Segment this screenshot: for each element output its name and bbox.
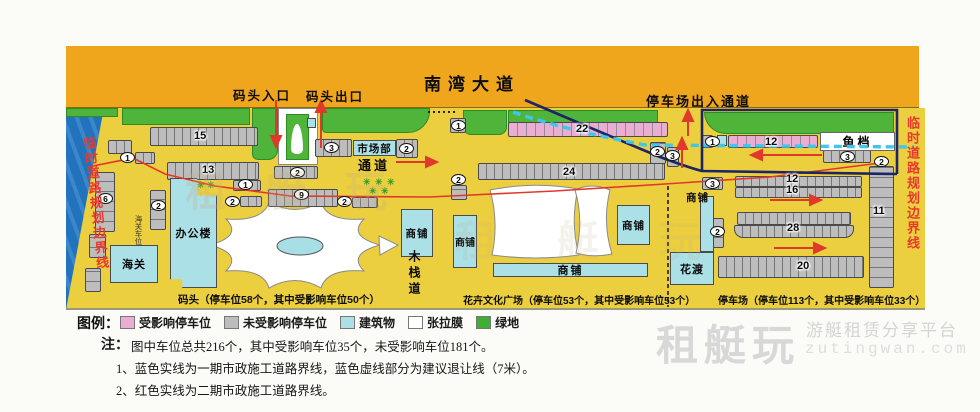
right-boundary-text: 临时道路规划边界线 — [903, 116, 922, 268]
row-number-24: 24 — [563, 166, 575, 178]
parking-stall — [135, 152, 155, 164]
gate-booth — [307, 118, 316, 128]
badge-3: 3 — [705, 178, 720, 189]
plant-icon: ✳ — [197, 180, 205, 191]
legend-title: 图例： — [77, 313, 119, 333]
legend-item-affected: 受影响停车位 — [120, 314, 211, 331]
building-shop: 商铺 — [453, 215, 477, 268]
watermark-brand: 租艇玩 — [656, 312, 800, 373]
boardwalk-label: 木栈道 — [406, 250, 423, 298]
badge-2: 2 — [151, 200, 166, 211]
row-number-16: 16 — [786, 184, 798, 196]
green-strip — [66, 108, 118, 117]
badge-9: 9 — [294, 189, 309, 200]
row-number-28: 28 — [787, 222, 799, 234]
membrane-swatch — [408, 316, 423, 329]
parking-lot-caption: 停车场（停车位113个，其中受影响车位33个） — [718, 292, 925, 307]
dock-caption: 码头（停车位58个，其中受影响车位50个） — [178, 292, 380, 307]
building-market-dept: 市场部 — [353, 140, 396, 156]
green-strip — [463, 110, 507, 135]
parking-row-2 — [352, 197, 378, 208]
row-number-15: 15 — [194, 130, 206, 142]
shop-label: 商铺 — [686, 190, 709, 205]
badge-3: 3 — [665, 150, 680, 161]
parking-col-2 — [451, 185, 467, 200]
badge-2: 2 — [650, 146, 665, 157]
shop-label: 商铺 — [558, 262, 584, 278]
unaffected-swatch — [224, 316, 239, 329]
watermark-tagline: 游艇租赁分享平台 — [806, 316, 958, 341]
legend: 受影响停车位 未受影响停车位 建筑物 张拉膜 绿地 — [120, 314, 519, 331]
note-line2: 2、红色实线为二期市政施工道路界线。 — [116, 380, 335, 399]
flower-ferry-label: 花渡 — [680, 261, 704, 277]
badge-1: 1 — [705, 136, 720, 147]
customs-label: 海关 — [122, 256, 146, 272]
parking-channel-label: 停车场出入通道 — [646, 91, 751, 110]
badge-2: 2 — [710, 226, 725, 237]
shop-label: 商铺 — [455, 234, 475, 249]
plaza-caption: 花卉文化广场（停车位53个，其中受影响车位53个） — [463, 292, 695, 307]
badge-2: 2 — [399, 143, 414, 154]
row-number-22: 22 — [576, 123, 588, 135]
green-strip — [704, 112, 894, 134]
note-prefix: 注： — [101, 334, 129, 354]
legend-label: 绿地 — [495, 314, 519, 331]
passage-label: 通道 — [358, 155, 390, 174]
legend-item-building: 建筑物 — [340, 314, 395, 331]
dock-exit-label: 码头出口 — [306, 86, 364, 105]
plant-icon: ✳ — [369, 186, 377, 197]
badge-1: 1 — [120, 152, 135, 163]
row-number-20: 20 — [797, 260, 809, 272]
affected-swatch — [120, 316, 135, 329]
legend-item-unaffected: 未受影响停车位 — [224, 314, 327, 331]
badge-3: 3 — [840, 151, 855, 162]
parking-row-20 — [718, 256, 864, 278]
plant-icon: ✳ — [381, 186, 389, 197]
building-swatch — [340, 316, 355, 329]
legend-item-green: 绿地 — [476, 314, 519, 331]
badge-2: 2 — [451, 174, 466, 185]
note-line1: 1、蓝色实线为一期市政施工道路界线，蓝色虚线部分为建议退让线（7米）。 — [116, 358, 535, 377]
legend-label: 受影响停车位 — [139, 314, 211, 331]
fish-stall-area: 鱼档 — [820, 132, 895, 151]
badge-2: 2 — [874, 156, 889, 167]
green-strip — [322, 108, 430, 133]
shop-label: 商铺 — [622, 218, 645, 233]
badge-1: 1 — [238, 179, 253, 190]
row-number-12: 12 — [765, 136, 777, 148]
badge-2: 2 — [337, 196, 352, 207]
parking-row-16 — [735, 187, 862, 198]
badge-1: 1 — [451, 120, 466, 131]
building-flower-ferry: 花渡 — [670, 252, 714, 285]
building-shop-bar: 商铺 — [493, 263, 648, 277]
office-label: 办公楼 — [176, 225, 212, 241]
legend-label: 未受影响停车位 — [243, 314, 327, 331]
customs-parking-label: 海关车位 — [133, 215, 144, 251]
badge-3: 3 — [324, 142, 339, 153]
row-number-13: 13 — [202, 164, 214, 176]
badge-2: 2 — [225, 196, 240, 207]
market-dept-label: 市场部 — [357, 141, 392, 156]
parking-row-12 — [735, 176, 862, 187]
site-map: 办公楼 海关 市场部 商铺 商铺 商铺 商铺 商铺 花渡 鱼档 15 13 22… — [0, 0, 980, 412]
watermark-domain: zutingwan.com — [805, 340, 969, 358]
plant-icon: ✳ — [207, 180, 215, 191]
shop-label: 商铺 — [406, 226, 429, 241]
legend-label: 建筑物 — [359, 314, 395, 331]
green-strip — [122, 108, 250, 125]
green-swatch — [476, 316, 491, 329]
parking-col-11 — [869, 166, 894, 288]
road-title: 南湾大道 — [424, 70, 520, 95]
note-summary: 图中车位总共216个，其中受影响车位35个，未受影响车位181个。 — [131, 336, 494, 355]
fish-stall-label: 鱼档 — [842, 133, 872, 150]
dock-entrance-label: 码头入口 — [233, 85, 291, 104]
legend-item-membrane: 张拉膜 — [408, 314, 463, 331]
parking-row-2 — [240, 196, 262, 207]
building-shop: 商铺 — [617, 205, 650, 245]
map-bottom-border — [66, 308, 925, 310]
legend-label: 张拉膜 — [427, 314, 463, 331]
badge-2: 2 — [290, 167, 305, 178]
row-number-11: 11 — [873, 205, 885, 217]
